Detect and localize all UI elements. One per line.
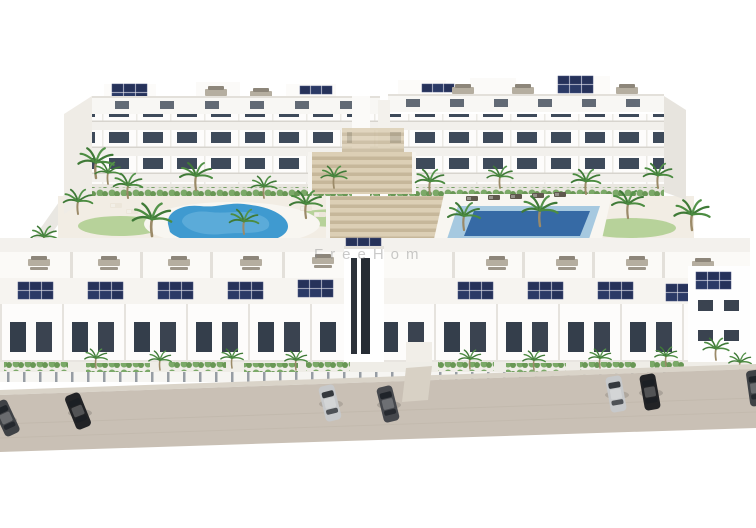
front-row-blocks [0,238,750,370]
stair-wall [412,152,416,194]
central-stair-tower [344,238,384,368]
roof-terrace-furniture [486,256,508,270]
sun-lounger [510,194,522,199]
solar-panels-icon [300,86,332,94]
solar-panels-icon [422,84,454,92]
scene-svg [0,0,756,528]
sun-lounger [314,212,326,217]
roof-terrace-furniture [556,256,578,270]
sun-lounger [488,195,500,200]
stair-flight-upper [312,152,412,194]
roof-terrace-furniture [626,256,648,270]
stair-wall [308,152,312,194]
sun-lounger [110,203,122,208]
render-canvas: FreeHom [0,0,756,528]
roof-terrace-furniture [168,256,190,270]
roof-terrace-furniture [28,256,50,270]
roof-terrace-furniture [98,256,120,270]
stairwell-glass [351,258,357,354]
sun-lounger [554,192,566,197]
sun-lounger [466,196,478,201]
roof-penthouse [470,78,516,94]
roof-band [92,96,380,114]
parapet-edge [92,96,380,98]
block-end-wall [664,96,686,200]
apartment-block-back-left [64,82,380,214]
roof-terrace-furniture [312,254,334,268]
entrance-crossing [402,366,432,402]
parapet-edge [388,94,664,96]
stairwell-glass [361,258,370,354]
corner-block-right [688,266,750,370]
pool-deep-lane [464,211,590,236]
roof-band [388,94,664,112]
roof-terrace-furniture [240,256,262,270]
